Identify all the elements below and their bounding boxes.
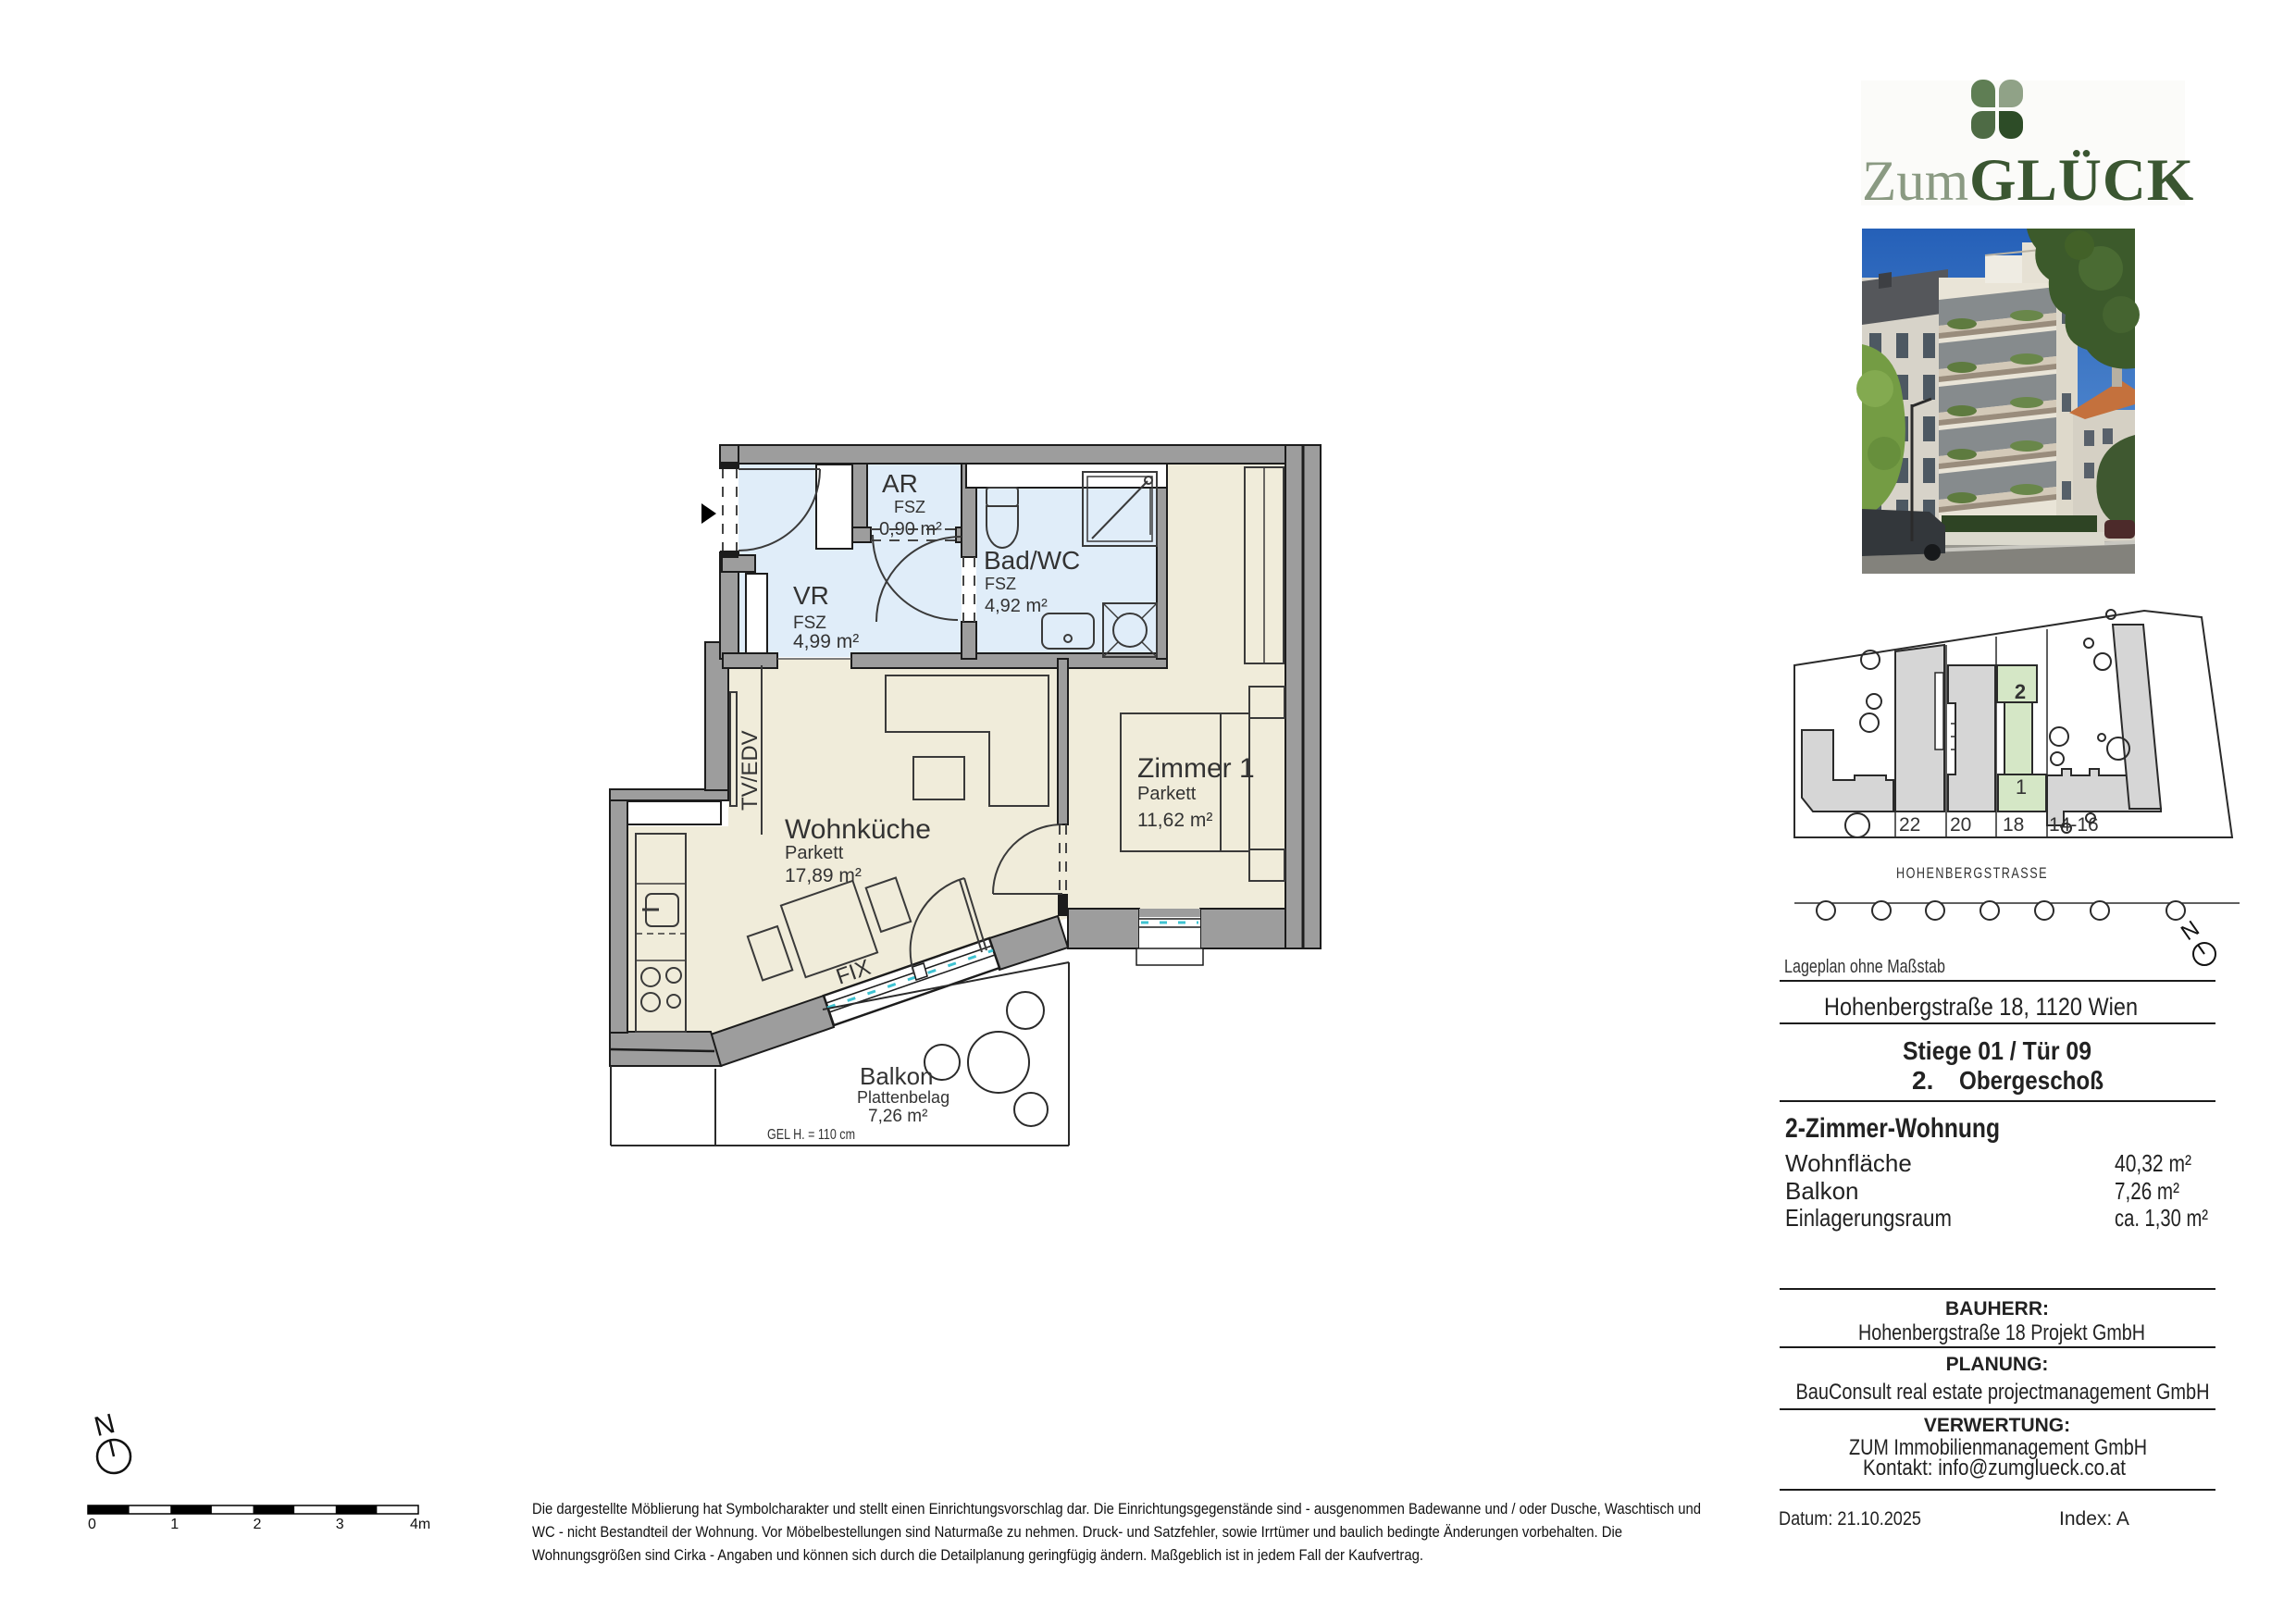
svg-text:40,32 m²: 40,32 m² [2115,1149,2191,1177]
svg-text:FSZ: FSZ [793,613,826,633]
svg-text:1: 1 [170,1517,179,1532]
svg-text:GLÜCK: GLÜCK [1969,147,2194,214]
svg-text:2-Zimmer-Wohnung: 2-Zimmer-Wohnung [1785,1113,2000,1144]
svg-text:TV/EDV: TV/EDV [738,730,763,811]
svg-text:4,99 m²: 4,99 m² [793,631,859,652]
svg-text:PLANUNG:: PLANUNG: [1946,1354,2049,1375]
svg-text:Einlagerungsraum: Einlagerungsraum [1785,1204,1952,1232]
svg-text:N: N [2177,916,2204,946]
svg-text:Balkon: Balkon [1785,1177,1859,1205]
svg-text:HOHENBERGSTRASSE: HOHENBERGSTRASSE [1896,864,2048,882]
svg-text:BauConsult real estate project: BauConsult real estate projectmanagement… [1796,1380,2210,1405]
svg-text:ca. 1,30 m²: ca. 1,30 m² [2115,1204,2208,1232]
svg-text:Zimmer 1: Zimmer 1 [1137,753,1255,784]
svg-text:WC - nicht Bestandteil der Woh: WC - nicht Bestandteil der Wohnung. Vor … [532,1523,1622,1541]
svg-text:7,26 m²: 7,26 m² [868,1107,927,1126]
svg-text:Hohenbergstraße 18 Projekt Gmb: Hohenbergstraße 18 Projekt GmbH [1858,1320,2145,1345]
svg-text:4,92 m²: 4,92 m² [985,596,1048,616]
svg-text:Die dargestellte Möblierung ha: Die dargestellte Möblierung hat Symbolch… [532,1500,1701,1518]
svg-text:FSZ: FSZ [894,498,925,516]
svg-text:N: N [92,1408,118,1443]
svg-text:GEL H. = 110 cm: GEL H. = 110 cm [767,1127,855,1143]
svg-text:VR: VR [793,581,829,610]
svg-text:Plattenbelag: Plattenbelag [857,1088,949,1107]
svg-text:20: 20 [1950,814,1971,836]
svg-text:0,90 m²: 0,90 m² [879,519,942,539]
svg-text:Index: A: Index: A [2059,1508,2129,1530]
svg-text:Kontakt: info@zumglueck.co.at: Kontakt: info@zumglueck.co.at [1863,1456,2126,1481]
svg-text:Balkon: Balkon [860,1062,934,1090]
svg-text:Stiege 01 / Tür 09: Stiege 01 / Tür 09 [1903,1036,2091,1065]
svg-text:Lageplan ohne Maßstab: Lageplan ohne Maßstab [1784,957,1945,977]
svg-text:FSZ: FSZ [985,575,1016,593]
svg-text:22: 22 [1899,814,1920,836]
svg-text:11,62 m²: 11,62 m² [1137,810,1212,831]
svg-text:2: 2 [254,1517,262,1532]
svg-text:Zum: Zum [1862,151,1968,213]
svg-text:2: 2 [2015,680,2026,703]
svg-text:BAUHERR:: BAUHERR: [1945,1298,2049,1319]
svg-text:1: 1 [2016,775,2027,799]
svg-text:Parkett: Parkett [785,843,844,863]
svg-text:VERWERTUNG:: VERWERTUNG: [1924,1415,2070,1436]
svg-text:17,89 m²: 17,89 m² [785,865,862,886]
svg-text:Obergeschoß: Obergeschoß [1959,1066,2104,1095]
svg-text:Bad/WC: Bad/WC [984,546,1080,575]
svg-text:7,26 m²: 7,26 m² [2115,1177,2179,1205]
svg-text:Parkett: Parkett [1137,784,1197,804]
svg-text:AR: AR [882,469,918,498]
svg-text:Wohnungsgrößen sind Cirka - An: Wohnungsgrößen sind Cirka - Angaben und … [532,1546,1423,1564]
svg-text:3: 3 [336,1517,344,1532]
svg-text:18: 18 [2003,814,2024,836]
svg-text:2.: 2. [1912,1066,1933,1095]
svg-text:Hohenbergstraße 18, 1120 Wien: Hohenbergstraße 18, 1120 Wien [1824,993,2138,1021]
svg-text:0: 0 [88,1517,96,1532]
svg-text:14-16: 14-16 [2049,814,2099,836]
svg-text:Wohnküche: Wohnküche [785,814,931,845]
svg-text:4m: 4m [410,1517,430,1532]
svg-text:Wohnfläche: Wohnfläche [1785,1149,1912,1177]
svg-text:Datum: 21.10.2025: Datum: 21.10.2025 [1779,1508,1921,1530]
